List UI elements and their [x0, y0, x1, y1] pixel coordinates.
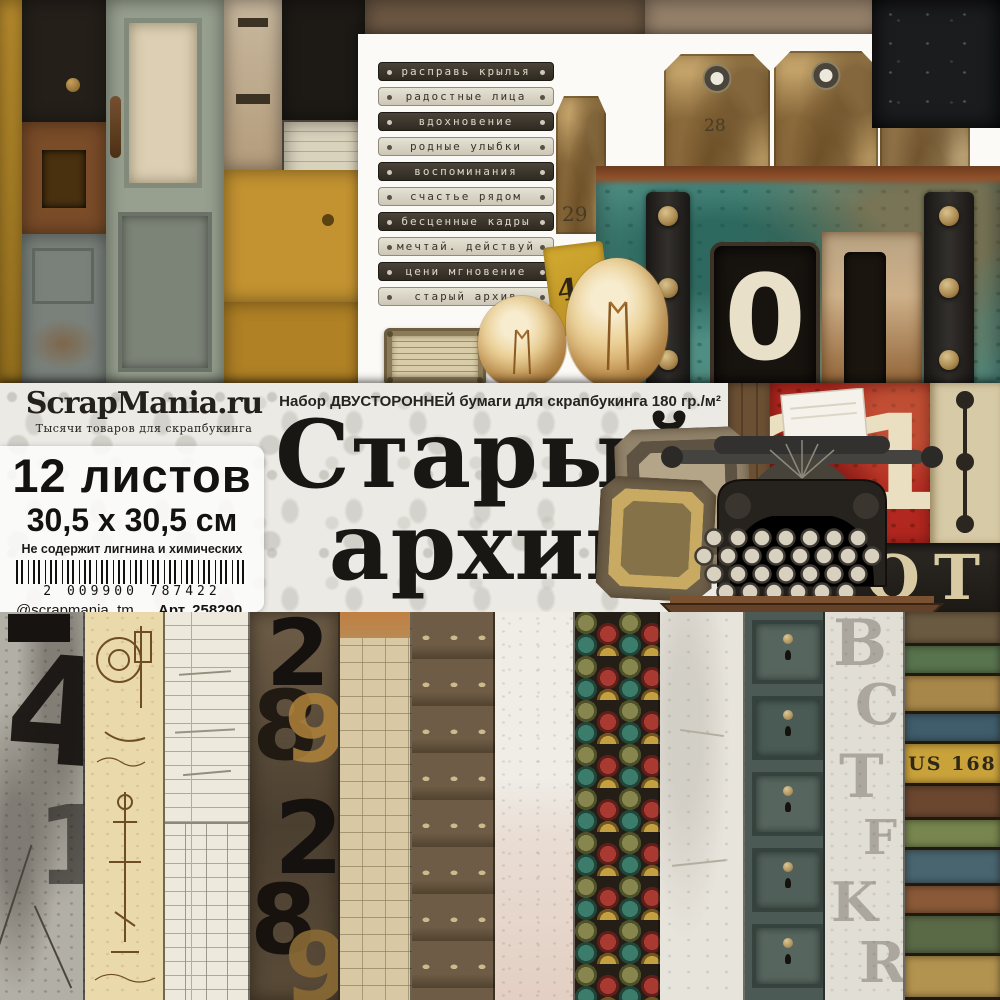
knob-icon: [783, 710, 793, 720]
paper-strip-faded-letters: B C T F K R: [825, 612, 905, 1000]
word-strip: бесценные кадры: [378, 212, 554, 231]
grunge-mark: [672, 859, 726, 867]
keyhole-icon: [785, 878, 791, 888]
door-panel-cell: [752, 696, 824, 760]
tag-eyelet-icon: [814, 63, 839, 88]
screw-icon: [387, 331, 393, 337]
word-strip: мечтай. действуй: [378, 237, 554, 256]
steel-rust-spot: [28, 318, 98, 370]
door-top-strip: [365, 0, 645, 38]
paper-strip-painted-planks: US 168: [905, 612, 1000, 1000]
word-strip-label: вдохновение: [419, 115, 514, 128]
locker-mustard-lower: [224, 302, 365, 385]
door-mustard-pillar: [0, 0, 22, 385]
locker-vent-slot: [238, 18, 268, 27]
paper-strip-table: [340, 612, 412, 1000]
ruler-dot-icon: [956, 453, 974, 471]
knob-icon: [783, 786, 793, 796]
plank-sign-text: US 168: [908, 753, 997, 775]
ruler-dot-icon: [956, 391, 974, 409]
plaster-speckle: [495, 612, 575, 1000]
product-banner: 21 ОТ ScrapMania.ru Тысячи товаров для с…: [0, 383, 1000, 612]
door-black-top: [282, 0, 365, 120]
word-strip: воспоминания: [378, 162, 554, 181]
faded-letter: R: [859, 930, 905, 996]
typewriter-image: [652, 388, 952, 620]
plank: [905, 612, 1000, 646]
brand-tagline: Тысячи товаров для скрапбукинга: [18, 422, 270, 435]
table-header-band: [340, 612, 412, 638]
word-strip-label: воспоминания: [414, 165, 517, 178]
knob-icon: [783, 938, 793, 948]
strap-rivet-icon: [658, 206, 678, 226]
faded-letter: T: [839, 742, 884, 812]
strip-number: 4: [0, 623, 85, 804]
brand-logo: ScrapMania.ru: [18, 388, 270, 420]
word-strip: родные улыбки: [378, 137, 554, 156]
plank: [905, 956, 1000, 1000]
trunk-stencil-opening: 0: [714, 246, 816, 390]
strip-number: 1: [36, 782, 85, 910]
barcode: [16, 560, 248, 584]
doorbell-icon: [66, 78, 80, 92]
door-wood-inset: [42, 150, 86, 208]
paper-strip-bottle-caps: [575, 612, 660, 1000]
handwriting-mark: [179, 670, 231, 676]
door-panel-cell: [752, 924, 824, 988]
word-strip: радостные лица: [378, 87, 554, 106]
locker-vent-slot: [236, 94, 270, 104]
trunk-slot: [844, 252, 886, 390]
trunk-side-panel: [822, 232, 922, 390]
keyhole-icon: [785, 954, 791, 964]
plank: [905, 714, 1000, 744]
paper-strip-plaster: [495, 612, 575, 1000]
plank: [905, 916, 1000, 956]
paper-strip-technical-drawings: [85, 612, 165, 1000]
faded-letter: F: [863, 810, 897, 866]
door-sage-green: [106, 0, 224, 385]
door-wood-brown: [22, 122, 106, 234]
edison-bulb: [566, 258, 668, 388]
label-plate: [384, 328, 486, 386]
paper-strip-door-panels: [745, 612, 825, 1000]
door-panel-cell: [752, 772, 824, 836]
paper-strip-grunge-numbers: 4 1: [0, 612, 85, 1000]
door-glass: [124, 18, 202, 188]
word-strip-label: радостные лица: [406, 90, 527, 103]
product-info-label: 12 листов 30,5 x 30,5 см Не содержит лиг…: [0, 446, 264, 612]
door-black-panel: [22, 0, 106, 122]
word-strip: расправь крылья: [378, 62, 554, 81]
strap-rivet-icon: [939, 206, 959, 226]
word-strip-label: мечтай. действуй: [397, 240, 535, 253]
strap-rivet-icon: [939, 350, 959, 370]
keyhole-icon: [785, 726, 791, 736]
tag-eyelet-icon: [705, 66, 730, 91]
locker-handle-dot: [322, 214, 334, 226]
word-strip-label: расправь крылья: [401, 65, 530, 78]
knob-icon: [783, 634, 793, 644]
trunk-strap: [924, 192, 974, 390]
door-panel-cell: [752, 620, 824, 684]
crack-line: [34, 905, 72, 988]
locker-mustard: [224, 170, 365, 302]
trunk-stencil-zero: 0: [724, 249, 806, 387]
chalkboard-panel: [872, 0, 1000, 128]
bulb-filament-icon: [566, 258, 668, 388]
brand-block: ScrapMania.ru Тысячи товаров для скрапбу…: [18, 388, 270, 448]
word-strip-label: родные улыбки: [410, 140, 522, 153]
plank: [905, 820, 1000, 850]
ruler-dot-icon: [956, 515, 974, 533]
edison-bulb: [478, 296, 566, 388]
knob-icon: [783, 862, 793, 872]
word-strip: счастье рядом: [378, 187, 554, 206]
paper-strips-row: 4 1: [0, 612, 1000, 1000]
strap-rivet-icon: [939, 278, 959, 298]
paper-strip-number-collage: 2 8 9 2 8 9: [250, 612, 340, 1000]
strip-number: 9: [284, 676, 340, 783]
sheet-size: 30,5 x 30,5 см: [0, 502, 264, 539]
paper-strip-light-grunge: [660, 612, 745, 1000]
tag-number: 28: [704, 116, 726, 136]
trunk-rust-edge: [596, 166, 1000, 186]
locker-rusty-cream: [224, 0, 282, 170]
keyhole-icon: [785, 802, 791, 812]
door-panel-cell: [752, 848, 824, 912]
word-strip-label: цени мгновение: [406, 265, 527, 278]
door-kick-panel: [118, 212, 212, 372]
plank-sign: US 168: [905, 744, 1000, 786]
word-strip: вдохновение: [378, 112, 554, 131]
plank: [905, 886, 1000, 916]
door-handle: [110, 96, 121, 158]
word-strip: цени мгновение: [378, 262, 554, 281]
faded-letter: K: [831, 870, 878, 934]
steel-panel-inset: [32, 248, 94, 304]
barcode-digits: 2 009900 787422: [16, 584, 248, 599]
plank: [905, 676, 1000, 714]
bulb-filament-icon: [478, 296, 566, 388]
paper-strip-ledger: [165, 612, 250, 1000]
keyhole-icon: [785, 650, 791, 660]
ledger-table: [165, 822, 250, 1000]
handwriting-mark: [175, 728, 235, 733]
grunge-mark: [680, 729, 724, 737]
word-strip-label: бесценные кадры: [401, 215, 530, 228]
paper-strip-card-drawers: [412, 612, 495, 1000]
sheets-count: 12 листов: [0, 448, 264, 503]
door-grey-steel: [22, 234, 106, 385]
tag-number: 29: [562, 202, 587, 226]
plank: [905, 786, 1000, 820]
word-strip-label: счастье рядом: [410, 190, 522, 203]
shipping-tag: [774, 51, 878, 185]
crack-line: [0, 845, 32, 960]
plank: [905, 646, 1000, 676]
patent-sketch: [85, 612, 165, 1000]
door-top-strip: [645, 0, 880, 38]
plank: [905, 850, 1000, 886]
strip-number: 9: [284, 912, 340, 1000]
faded-letter: C: [855, 672, 900, 738]
label-plate-lines: [392, 336, 478, 378]
faded-letter: B: [833, 612, 887, 681]
product-packaging-image: расправь крылья радостные лица вдохновен…: [0, 0, 1000, 1000]
